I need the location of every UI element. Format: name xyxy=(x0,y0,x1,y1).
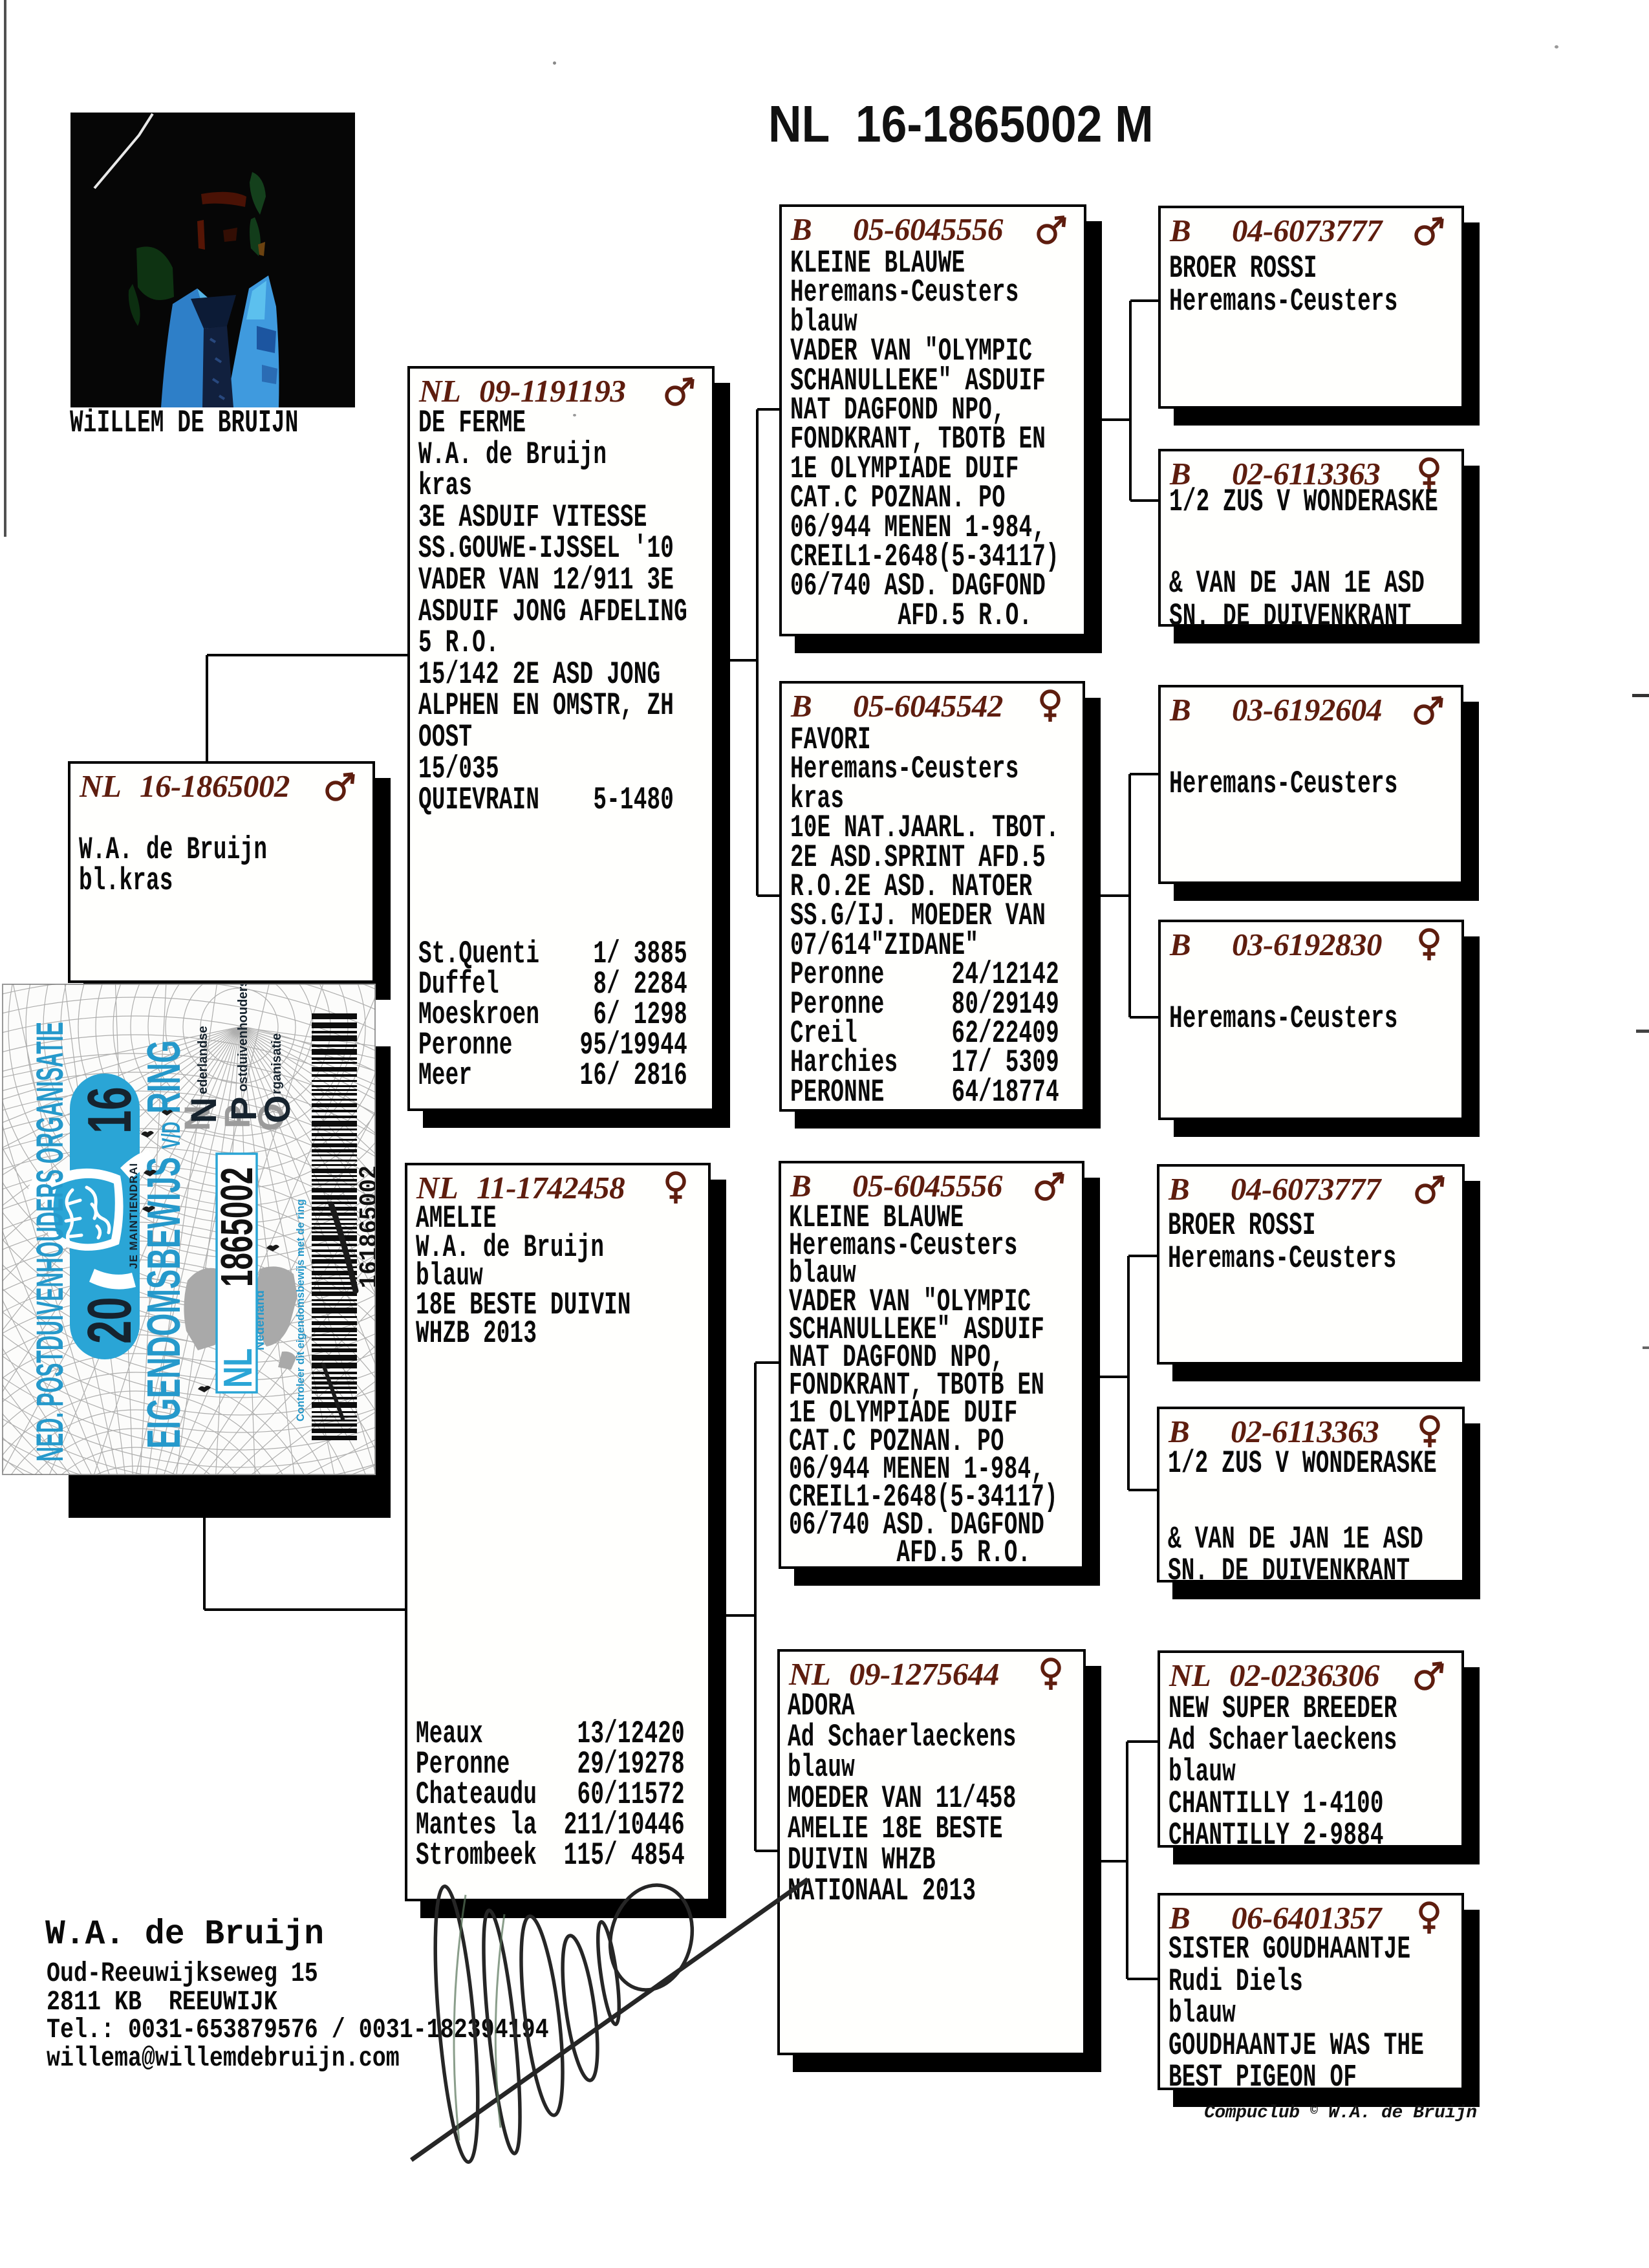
svg-text:rganisatie: rganisatie xyxy=(270,1033,284,1094)
svg-text:20: 20 xyxy=(76,1297,144,1344)
svg-text:O: O xyxy=(257,1095,297,1123)
svg-text:N: N xyxy=(183,1097,224,1123)
svg-text:ostduivenhouders: ostduivenhouders xyxy=(236,980,250,1092)
svg-text:16: 16 xyxy=(76,1086,144,1134)
svg-text:Controleer dit eigendomsbewijs: Controleer dit eigendomsbewijs met de ri… xyxy=(295,1199,307,1421)
svg-text:EIGENDOMSBEWIJS V/D RING: EIGENDOMSBEWIJS V/D RING xyxy=(138,1040,189,1449)
svg-text:NED. POSTDUIVENHOUDERS ORGANIS: NED. POSTDUIVENHOUDERS ORGANISATIE xyxy=(29,1022,70,1462)
svg-text:ederlandse: ederlandse xyxy=(196,1026,210,1094)
svg-text:1865002: 1865002 xyxy=(211,1167,262,1287)
svg-text:NL: NL xyxy=(215,1348,260,1388)
